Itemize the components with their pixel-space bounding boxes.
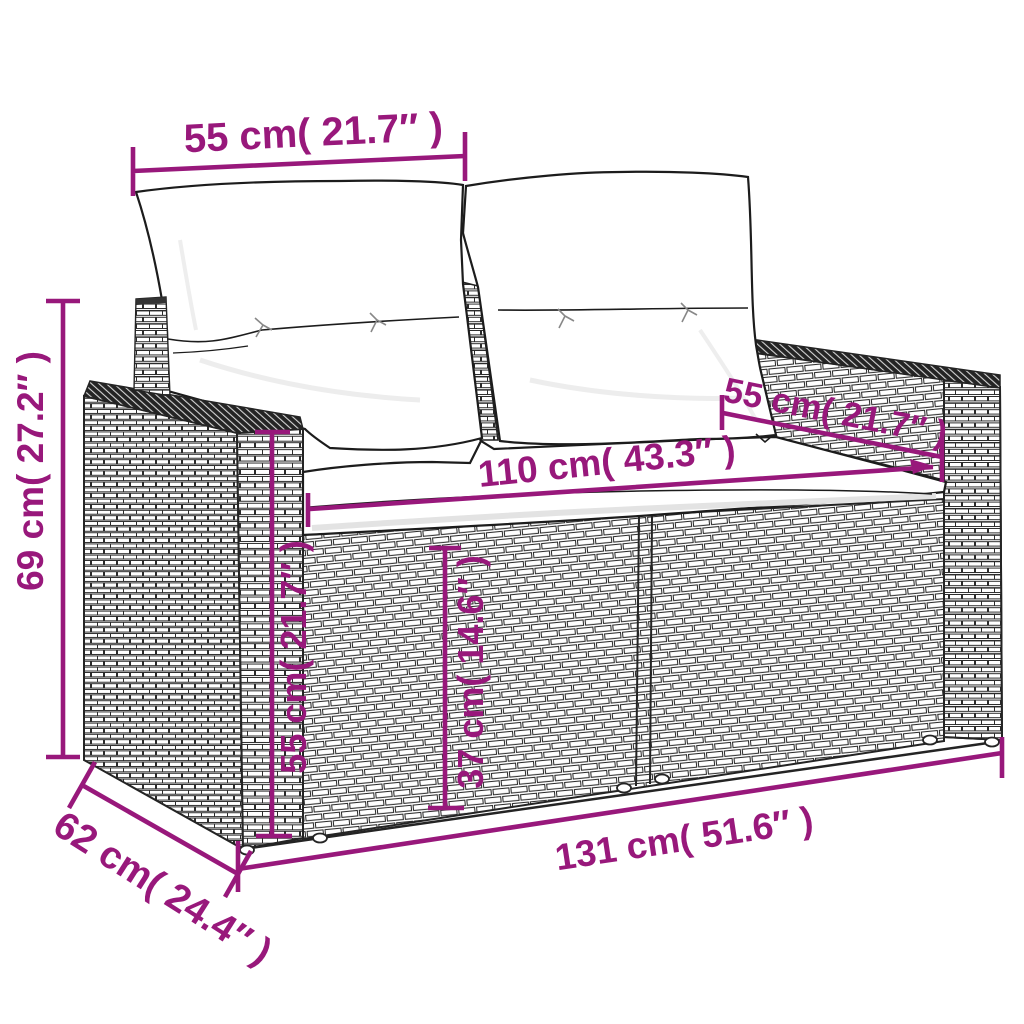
svg-text:69 cm( 27.2″ ): 69 cm( 27.2″ ) <box>10 351 51 591</box>
svg-text:55 cm( 21.7″ ): 55 cm( 21.7″ ) <box>273 540 314 773</box>
svg-text:37 cm( 14.6″ ): 37 cm( 14.6″ ) <box>450 555 491 788</box>
